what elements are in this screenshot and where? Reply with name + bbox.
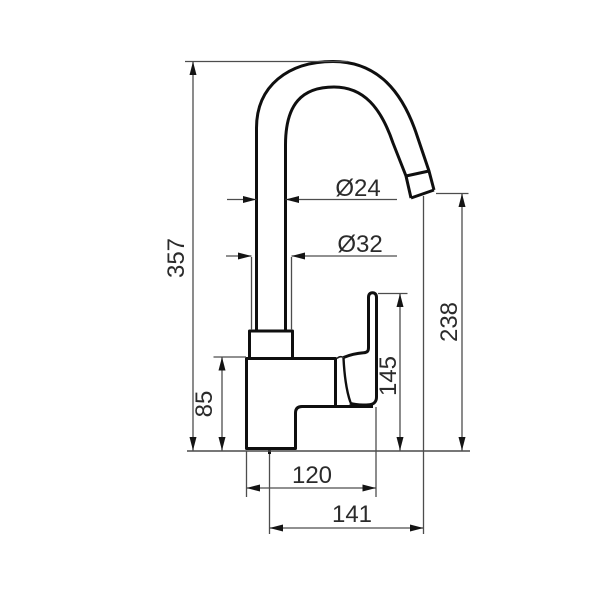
arrow-85-bottom	[219, 437, 226, 451]
arrow-238-bottom	[459, 437, 466, 451]
arrow-120-right	[363, 485, 377, 492]
arrow-357-bottom	[190, 437, 197, 451]
spout-tip-face	[411, 190, 434, 198]
spout-aerator-band	[406, 171, 429, 176]
arrow-dia32-right	[292, 253, 306, 260]
dim-label-overall-height: 357	[163, 238, 190, 278]
arrow-145-bottom	[397, 437, 404, 451]
arrow-238-top	[459, 194, 466, 208]
drawing-canvas: 357 85 145 238 120 141 Ø24 Ø32	[0, 0, 600, 600]
dim-label-body-height: 85	[191, 391, 218, 418]
lever-handle	[344, 293, 377, 405]
arrow-141-right	[410, 525, 424, 532]
arrow-141-left	[270, 525, 284, 532]
dim-label-base-collar-diameter: Ø32	[337, 231, 382, 258]
dim-label-outlet-height: 238	[436, 302, 463, 342]
arrow-85-top	[219, 357, 226, 371]
dim-label-handle-height: 145	[375, 356, 402, 396]
arrow-120-left	[247, 485, 261, 492]
dim-label-spout-pipe-diameter: Ø24	[335, 175, 380, 202]
arrow-dia24-right	[286, 196, 300, 203]
faucet-technical-drawing: 357 85 145 238 120 141 Ø24 Ø32	[0, 0, 600, 600]
cartridge-joint	[344, 358, 351, 403]
arrow-dia32-left	[238, 253, 252, 260]
arrow-dia24-left	[243, 196, 257, 203]
spout-base-collar	[250, 331, 293, 359]
dimension-labels: 357 85 145 238 120 141 Ø24 Ø32	[163, 175, 463, 528]
dim-label-body-depth: 120	[292, 462, 332, 489]
dim-label-spout-reach: 141	[332, 501, 372, 528]
spout-inner-edge	[286, 87, 412, 331]
arrow-357-top	[190, 62, 197, 76]
arrow-145-top	[397, 294, 404, 308]
